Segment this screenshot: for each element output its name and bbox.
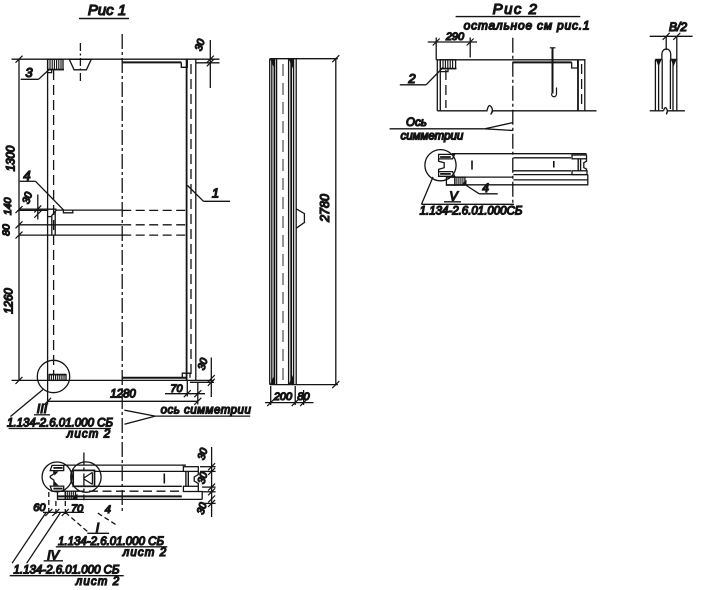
svg-text:30: 30 [195,447,210,462]
svg-text:30: 30 [196,357,211,372]
svg-text:Рис 2: Рис 2 [493,1,539,18]
svg-text:290: 290 [445,31,465,43]
svg-text:140: 140 [2,197,14,215]
svg-text:остальное см рис.1: остальное см рис.1 [464,19,591,33]
svg-text:III: III [37,402,48,416]
svg-text:70: 70 [170,383,183,395]
svg-text:Ось: Ось [406,117,427,129]
svg-text:1280: 1280 [110,389,136,401]
svg-text:лист 2: лист 2 [66,429,111,441]
svg-text:Рис 1: Рис 1 [88,2,126,19]
svg-text:70: 70 [71,503,84,515]
svg-text:1260: 1260 [3,288,15,314]
svg-text:4: 4 [105,504,111,516]
svg-text:1: 1 [212,186,219,201]
svg-text:2: 2 [407,71,416,86]
svg-text:80: 80 [1,224,13,236]
svg-text:30: 30 [193,38,208,53]
svg-text:30: 30 [20,191,35,206]
svg-text:30: 30 [195,471,210,486]
svg-text:В/2: В/2 [669,20,687,34]
svg-text:80: 80 [297,391,310,403]
svg-text:4: 4 [482,181,489,195]
svg-text:200: 200 [273,391,293,403]
svg-text:лист 2: лист 2 [75,576,120,588]
svg-text:ось симметрии: ось симметрии [161,405,252,417]
svg-text:2780: 2780 [318,194,332,223]
svg-text:1300: 1300 [6,145,18,171]
svg-text:симметрии: симметрии [400,131,463,143]
svg-text:3: 3 [25,65,33,80]
svg-text:лист 2: лист 2 [122,547,167,559]
svg-text:60: 60 [33,502,46,514]
svg-text:1.134-2.6.01.000СБ: 1.134-2.6.01.000СБ [420,206,523,218]
svg-text:1.134-2.6.01.000 СБ: 1.134-2.6.01.000 СБ [14,565,120,577]
